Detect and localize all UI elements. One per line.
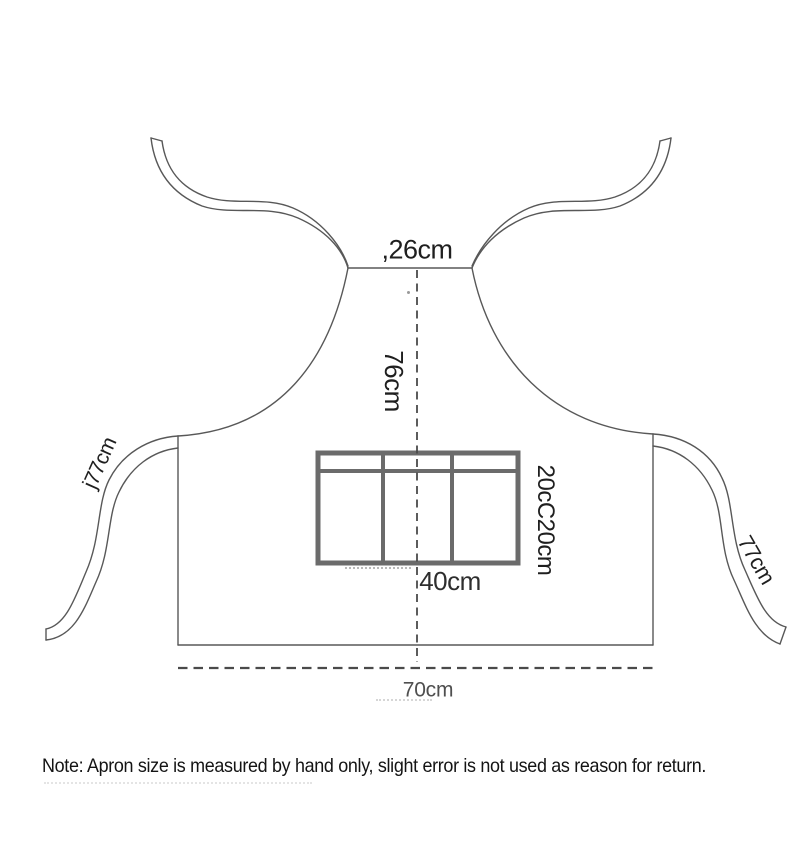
faint-clipped-text-artifact bbox=[345, 567, 411, 569]
pocket-width-label: 40cm bbox=[419, 568, 481, 594]
apron-outline-svg bbox=[0, 0, 790, 860]
bib-length-label: 76cm bbox=[381, 350, 407, 412]
neck-width-prefix-mark: , bbox=[381, 235, 388, 265]
bib-side-right-curve bbox=[472, 268, 653, 434]
right-tie-end-cut bbox=[780, 627, 786, 644]
apron-size-diagram: ,26cm 76cm 20cC20cm j77cm 77cm 40cm 70cm… bbox=[0, 0, 790, 860]
pocket-height-label: 20cC20cm bbox=[533, 465, 557, 576]
left-strap-outer-edge bbox=[151, 138, 348, 268]
left-tie-top-edge bbox=[46, 436, 178, 629]
speck-artifact bbox=[407, 291, 410, 294]
hem-width-label: 70cm bbox=[403, 680, 454, 701]
right-strap-outer-edge bbox=[472, 138, 671, 268]
neck-width-label: ,26cm bbox=[381, 237, 452, 264]
right-tie-top-edge bbox=[653, 434, 786, 627]
left-tie-bottom-edge bbox=[46, 448, 178, 640]
faint-hem-artifact bbox=[376, 699, 432, 701]
right-strap-tip-cut bbox=[660, 138, 671, 141]
neck-width-value: 26cm bbox=[388, 235, 452, 265]
faint-note-ghost-artifact bbox=[44, 782, 312, 784]
measurement-note: Note: Apron size is measured by hand onl… bbox=[42, 755, 706, 778]
right-strap-inner-edge bbox=[472, 141, 660, 266]
apron-outline-group bbox=[46, 138, 786, 645]
bib-side-left-curve bbox=[178, 268, 348, 436]
pocket-group bbox=[318, 453, 518, 563]
left-strap-inner-edge bbox=[162, 141, 348, 266]
left-strap-tip-cut bbox=[151, 138, 162, 141]
